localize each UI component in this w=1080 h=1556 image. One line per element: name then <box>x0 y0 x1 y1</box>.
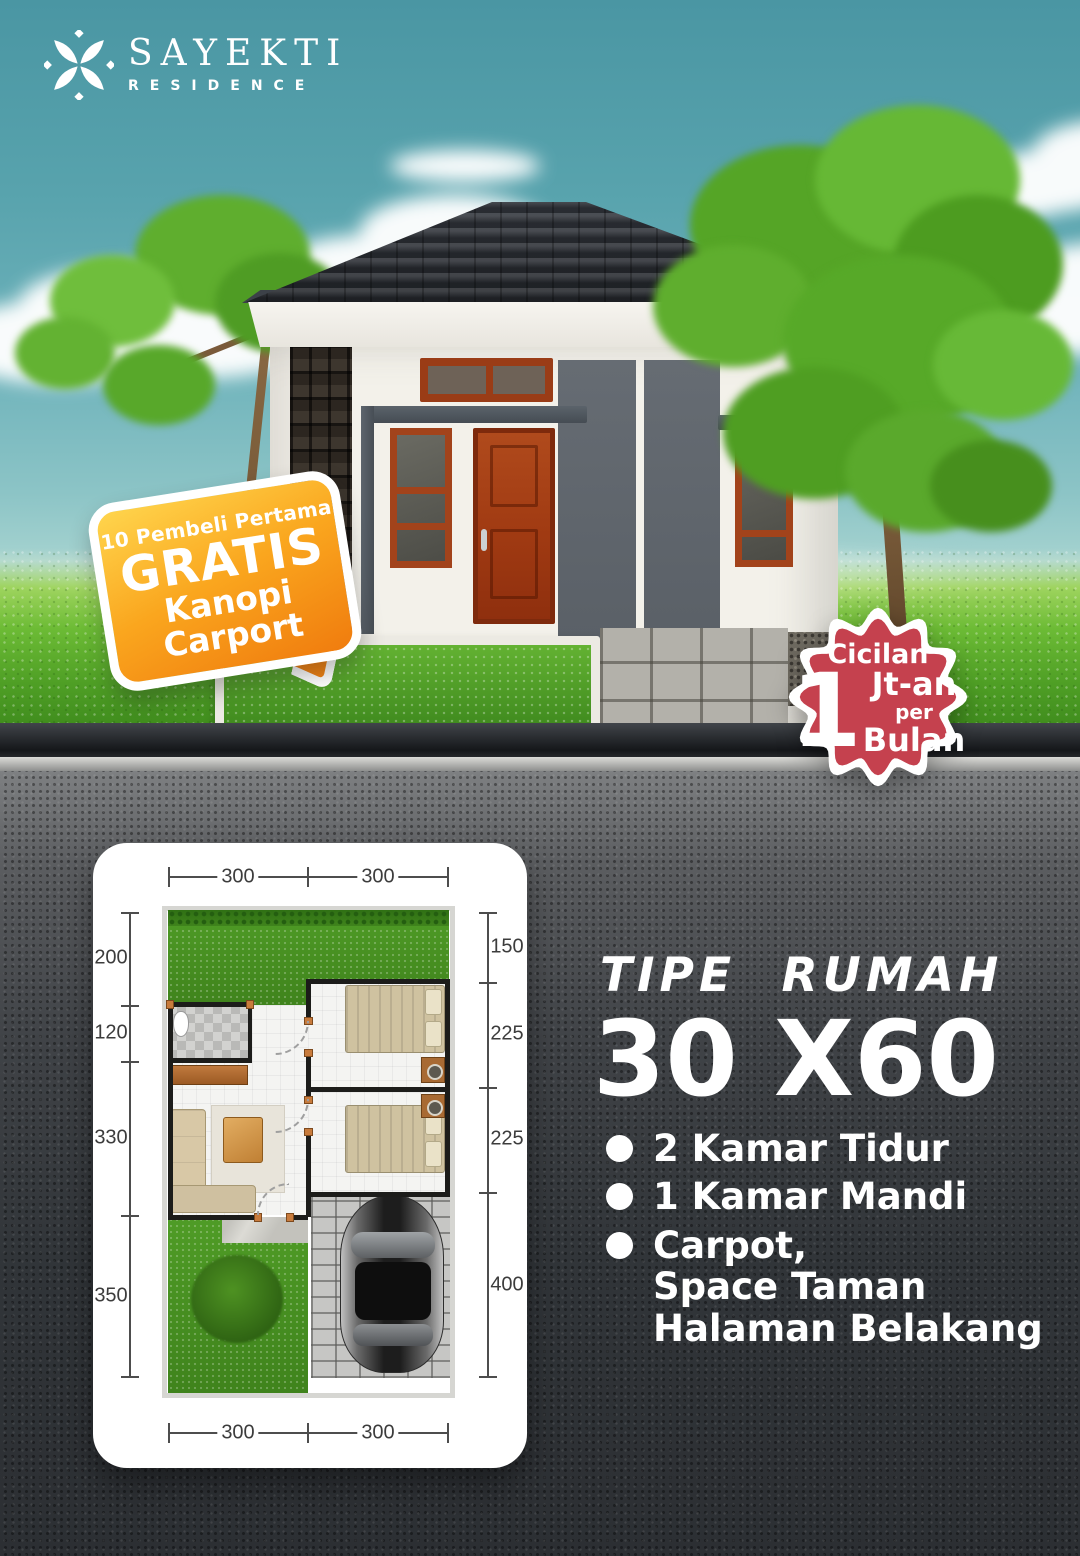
door-handle-icon <box>481 529 487 551</box>
dim-tick <box>168 867 170 887</box>
side-window <box>390 428 452 568</box>
dim-tick <box>479 1087 497 1089</box>
door-frame-mark <box>304 1049 313 1057</box>
type-size: 30 X60 <box>593 998 999 1120</box>
wall <box>445 979 450 1197</box>
feature-item: Carpot, Space Taman Halaman Belakang <box>606 1225 1043 1349</box>
wall <box>248 1005 252 1061</box>
car-top-view <box>340 1195 444 1373</box>
door-frame-mark <box>304 1128 313 1136</box>
brand-subtitle: RESIDENCE <box>128 78 348 94</box>
pillow <box>425 1141 442 1167</box>
dim-label: 300 <box>217 866 258 889</box>
tree-foliage <box>15 317 115 389</box>
feature-item: 1 Kamar Mandi <box>606 1176 1043 1217</box>
dresser <box>170 1065 248 1085</box>
dim-tick <box>121 912 139 914</box>
feature-text: 1 Kamar Mandi <box>653 1176 967 1217</box>
car-windshield <box>351 1232 435 1258</box>
feature-text: 2 Kamar Tidur <box>653 1128 949 1169</box>
transom-window <box>420 358 553 402</box>
front-door <box>473 428 555 624</box>
tree-foliage <box>103 345 215 425</box>
wall <box>168 1002 252 1007</box>
tree-foliage <box>930 440 1052 532</box>
installment-amount: 1 <box>791 672 858 752</box>
door-frame-mark <box>166 1000 174 1009</box>
door-panel <box>490 445 538 507</box>
feature-text: Carpot, Space Taman Halaman Belakang <box>653 1225 1043 1349</box>
floorplan-card: 300 300 300 300 200 120 330 350 150 225 … <box>93 843 527 1468</box>
canopy-post <box>361 406 374 634</box>
type-heading: TIPE RUMAH <box>600 948 1003 1003</box>
feature-list: 2 Kamar Tidur 1 Kamar Mandi Carpot, Spac… <box>606 1128 1043 1349</box>
window-rail <box>397 487 445 494</box>
dim-label: 225 <box>486 1023 527 1046</box>
dim-tick <box>168 1423 170 1443</box>
wall <box>168 1058 252 1063</box>
pillow <box>425 989 442 1015</box>
poster: 10 Pembeli Pertama GRATIS Kanopi Carport… <box>0 0 1080 1556</box>
wall <box>168 1002 173 1220</box>
window-mullion <box>486 366 493 394</box>
dim-tick <box>121 1005 139 1007</box>
sofa-chaise <box>170 1185 256 1213</box>
logo-flower-icon <box>44 30 114 100</box>
dim-tick <box>121 1376 139 1378</box>
dim-label: 400 <box>486 1274 527 1297</box>
nightstand <box>421 1094 445 1118</box>
installment-unit: Jt-an <box>872 668 957 700</box>
dim-label: 300 <box>357 1422 398 1445</box>
installment-badge: Cicilan 1 Jt-an per Bulan <box>786 605 970 789</box>
bullet-icon <box>606 1135 633 1162</box>
wall <box>306 979 311 1019</box>
dim-tick <box>447 1423 449 1443</box>
dim-label: 350 <box>90 1285 131 1308</box>
car-rear-window <box>353 1324 433 1346</box>
window-rail <box>397 523 445 530</box>
dim-label: 225 <box>486 1128 527 1151</box>
dim-label: 150 <box>486 936 527 959</box>
dim-tick <box>479 982 497 984</box>
dim-tick <box>447 867 449 887</box>
back-hedge <box>168 910 449 926</box>
installment-per: per <box>895 702 933 722</box>
bullet-icon <box>606 1232 633 1259</box>
dim-tick <box>121 1215 139 1217</box>
dim-tick <box>479 912 497 914</box>
porch <box>222 1217 308 1243</box>
garden-bush <box>191 1255 283 1343</box>
tree <box>635 105 1045 670</box>
tree-foliage <box>933 310 1073 420</box>
door-panel <box>490 529 538 599</box>
toilet-icon <box>173 1011 189 1037</box>
wall <box>306 1133 311 1217</box>
dim-tick <box>307 867 309 887</box>
wall <box>308 979 450 984</box>
car-roof <box>355 1262 431 1320</box>
dim-tick <box>479 1192 497 1194</box>
dim-label: 330 <box>90 1127 131 1150</box>
bullet-icon <box>606 1183 633 1210</box>
dim-label: 300 <box>357 866 398 889</box>
wall <box>311 1192 450 1197</box>
nightstand <box>421 1057 445 1083</box>
installment-period: Bulan <box>863 724 966 756</box>
feature-item: 2 Kamar Tidur <box>606 1128 1043 1169</box>
promo-badge: 10 Pembeli Pertama GRATIS Kanopi Carport <box>85 467 366 694</box>
wall <box>311 1087 450 1092</box>
dim-tick <box>307 1423 309 1443</box>
brand-logo: SAYEKTI RESIDENCE <box>44 30 348 100</box>
dim-label: 200 <box>90 947 131 970</box>
pillow <box>425 1021 442 1047</box>
dim-label: 120 <box>90 1022 131 1045</box>
dim-label: 300 <box>217 1422 258 1445</box>
dim-tick <box>121 1061 139 1063</box>
door-frame-mark <box>246 1000 254 1009</box>
brand-name: SAYEKTI <box>128 36 348 72</box>
dim-tick <box>479 1376 497 1378</box>
wall <box>168 1215 256 1220</box>
window-canopy <box>361 406 587 423</box>
coffee-table <box>223 1117 263 1163</box>
